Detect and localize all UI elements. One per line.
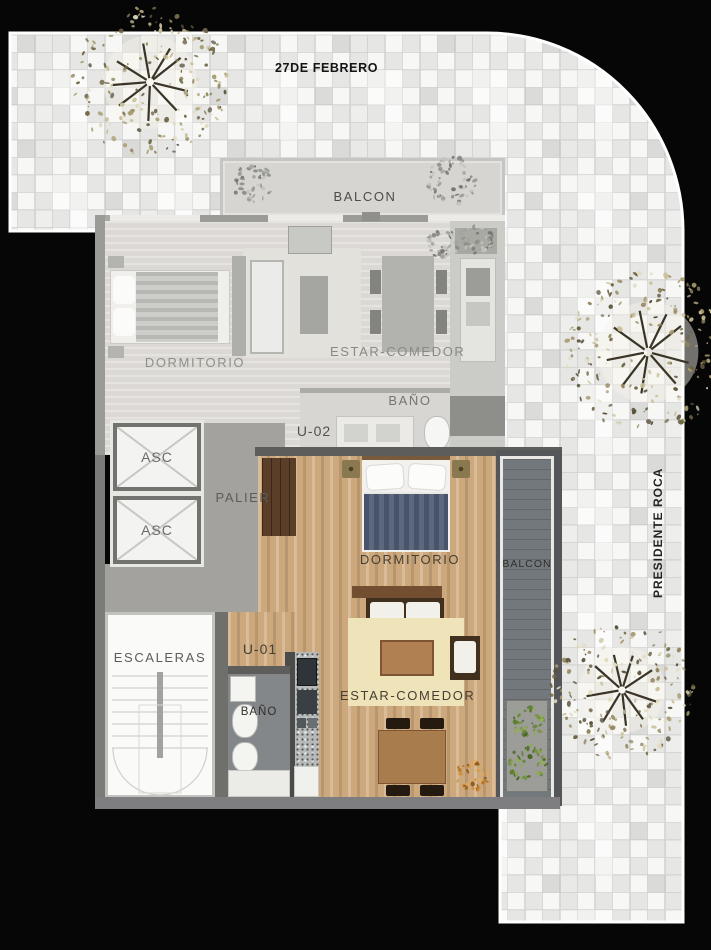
- floor-plan-canvas: ASC ASC BALCON: [0, 0, 711, 950]
- trees-and-plants-layer: [0, 0, 711, 950]
